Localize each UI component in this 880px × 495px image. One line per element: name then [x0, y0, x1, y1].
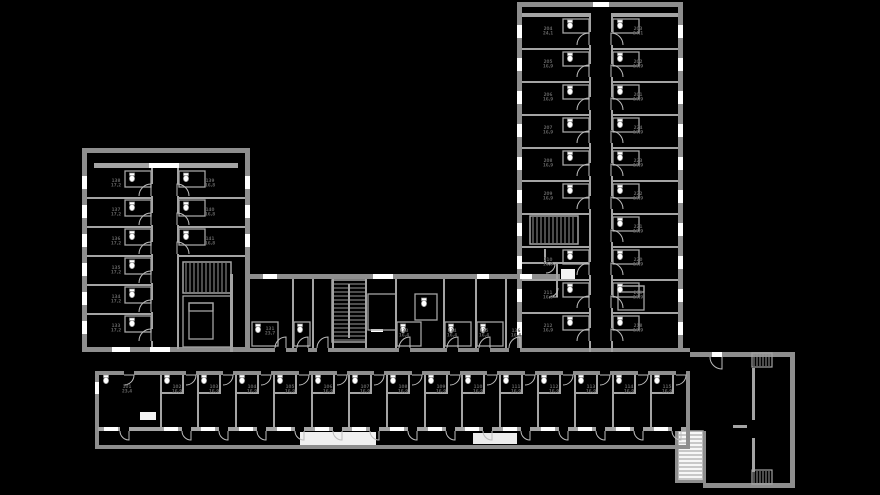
door-gap [374, 371, 384, 375]
floor-patch [140, 412, 156, 420]
toilet-bowl [352, 377, 357, 383]
floor-patch [300, 432, 376, 445]
window-opening [678, 256, 683, 269]
door-gap [596, 427, 605, 431]
bath-partition [634, 375, 636, 394]
window-opening [477, 274, 489, 279]
room-label: 10816,9 [398, 384, 408, 394]
room-label: 13517,2 [111, 265, 121, 275]
room-label: 10416,9 [247, 384, 257, 394]
partition-wall [733, 425, 747, 428]
room-label: 10516,9 [285, 384, 295, 394]
room-divider [386, 375, 388, 427]
outer-wall [675, 480, 706, 483]
window-opening [263, 274, 277, 279]
room-label: 10916,9 [436, 384, 446, 394]
window-opening [150, 347, 170, 352]
toilet-bowl [183, 175, 188, 181]
bath-partition [295, 375, 297, 394]
window-opening [517, 256, 522, 269]
toilet-bowl [129, 175, 134, 181]
partition-wall [179, 255, 245, 257]
bath-partition [182, 375, 184, 394]
bath-partition [408, 375, 410, 394]
gallery-window [201, 427, 215, 431]
toilet-bowl [201, 377, 206, 383]
room-label: 11216,9 [549, 384, 559, 394]
door-gap [483, 427, 492, 431]
room-label: 20616,9 [543, 92, 553, 102]
window-opening [678, 289, 683, 302]
room-label: 13516,4 [479, 328, 489, 338]
room-divider [574, 375, 576, 427]
room-divider [650, 375, 652, 427]
room-divider [424, 375, 426, 427]
gallery-window [239, 427, 253, 431]
bath-partition [596, 375, 598, 394]
room-label: 13616,4 [511, 328, 521, 338]
door-gap [124, 371, 134, 375]
partition-wall [613, 213, 678, 215]
room-label: 14016,8 [205, 207, 215, 217]
door-gap [120, 427, 129, 431]
door-gap [447, 348, 458, 352]
room-divider [311, 375, 313, 427]
door-gap [600, 371, 610, 375]
room-divider [348, 375, 350, 427]
gallery-window [654, 427, 668, 431]
door-gap [317, 348, 328, 352]
partition-wall [613, 81, 678, 83]
bath-partition [370, 375, 372, 394]
door-gap [275, 348, 286, 352]
floor-plan-canvas: 13817,213717,213617,213517,213417,213317… [0, 0, 880, 495]
room-label: 13123,7 [265, 326, 275, 336]
gallery-window [465, 427, 479, 431]
partition-wall [332, 279, 334, 348]
toilet-bowl [503, 377, 508, 383]
partition-wall [752, 438, 755, 472]
room-label: 10316,9 [209, 384, 219, 394]
partition-wall [522, 246, 589, 248]
room-label: 22016,9 [633, 257, 643, 267]
bath-partition [521, 375, 523, 394]
partition-wall [312, 279, 314, 348]
room-divider [499, 375, 501, 427]
window-opening [82, 176, 87, 189]
toilet-bowl [567, 22, 572, 28]
bath-partition [219, 375, 221, 394]
toilet-bowl [421, 300, 426, 306]
room-label: 13417,2 [111, 294, 121, 304]
window-opening [82, 292, 87, 305]
window-opening [245, 176, 250, 189]
door-gap [525, 371, 535, 375]
floor-patch [561, 269, 575, 279]
door-gap [479, 348, 490, 352]
room-label: 22316,9 [633, 158, 643, 168]
window-opening [95, 382, 99, 394]
room-label: 13316,4 [399, 328, 409, 338]
toilet-bowl [428, 377, 433, 383]
partition-wall [613, 48, 678, 50]
partition-wall [522, 13, 591, 17]
gallery-window [390, 427, 404, 431]
room-label: 20716,9 [543, 125, 553, 135]
room-label: 13317,2 [111, 323, 121, 333]
door-gap [559, 427, 568, 431]
toilet-bowl [578, 377, 583, 383]
room-divider [612, 375, 614, 427]
toilet-bowl [617, 187, 622, 193]
floor-patch [473, 433, 517, 444]
outer-wall [703, 483, 795, 488]
door-gap [509, 348, 520, 352]
window-opening [678, 322, 683, 335]
door-gap [223, 371, 233, 375]
room-label: 21916,9 [633, 290, 643, 300]
window-opening [520, 274, 532, 279]
toilet-bowl [390, 377, 395, 383]
room-label: 22116,9 [633, 224, 643, 234]
room-label: 20916,9 [543, 191, 553, 201]
toilet-bowl [617, 253, 622, 259]
partition-wall [87, 226, 151, 228]
window-opening [593, 2, 609, 7]
partition-wall [522, 180, 589, 182]
partition-wall [87, 197, 151, 199]
room-label: 20324,1 [633, 26, 643, 36]
window-opening [678, 91, 683, 104]
toilet-bowl [129, 262, 134, 268]
door-gap [257, 427, 266, 431]
door-gap [337, 371, 347, 375]
window-opening [517, 124, 522, 137]
room-label: 20216,9 [633, 59, 643, 69]
door-gap [186, 371, 196, 375]
partition-wall [613, 147, 678, 149]
plan-background [0, 0, 880, 495]
window-opening [112, 347, 130, 352]
partition-wall [87, 313, 151, 315]
room-label: 11116,9 [511, 384, 521, 394]
door-gap [634, 427, 643, 431]
window-opening [245, 205, 250, 218]
bath-partition [446, 375, 448, 394]
room-label: 20816,9 [543, 158, 553, 168]
door-gap [521, 427, 530, 431]
partition-wall [522, 147, 589, 149]
toilet-bowl [567, 154, 572, 160]
window-opening [82, 234, 87, 247]
room-divider [160, 375, 162, 427]
window-opening [82, 205, 87, 218]
gallery-window [315, 427, 329, 431]
room-label: 13717,2 [111, 207, 121, 217]
bath-partition [333, 375, 335, 394]
toilet-bowl [129, 233, 134, 239]
window-opening [517, 289, 522, 302]
door-gap [261, 371, 271, 375]
outer-wall [790, 352, 795, 488]
gallery-window [352, 427, 366, 431]
door-gap [487, 371, 497, 375]
partition-wall [179, 197, 245, 199]
door-gap [408, 427, 417, 431]
room-divider [537, 375, 539, 427]
window-opening [517, 58, 522, 71]
partition-wall [87, 255, 151, 257]
toilet-bowl [277, 377, 282, 383]
room-label: 21116,9 [543, 290, 553, 300]
partition-wall [365, 279, 367, 348]
door-gap [297, 348, 308, 352]
window-opening [517, 91, 522, 104]
partition-wall [179, 226, 245, 228]
room-label: 11316,9 [586, 384, 596, 394]
gallery-window [578, 427, 592, 431]
room-label: 22416,9 [633, 125, 643, 135]
toilet-bowl [129, 320, 134, 326]
window-opening [678, 223, 683, 236]
partition-wall [522, 213, 589, 215]
door-gap [219, 427, 228, 431]
door-gap [299, 371, 309, 375]
room-divider [273, 375, 275, 427]
room-divider [235, 375, 237, 427]
window-opening [373, 274, 393, 279]
partition-wall [611, 13, 678, 17]
window-opening [678, 157, 683, 170]
room-label: 21816,9 [633, 323, 643, 333]
gallery-window [164, 427, 178, 431]
toilet-bowl [255, 326, 260, 332]
door-gap [450, 371, 460, 375]
door-gap [412, 371, 422, 375]
gallery-window [428, 427, 442, 431]
room-label: 13817,2 [111, 178, 121, 188]
room-label: 11016,9 [473, 384, 483, 394]
toilet-bowl [567, 121, 572, 127]
toilet-bowl [541, 377, 546, 383]
room-label: 21216,9 [543, 323, 553, 333]
outer-wall [95, 445, 687, 449]
partition-wall [613, 312, 678, 314]
gallery-window [616, 427, 630, 431]
window-opening [149, 163, 179, 168]
partition-wall [348, 284, 350, 338]
floor-plan: 13817,213717,213617,213517,213417,213317… [0, 0, 880, 495]
bath-partition [559, 375, 561, 394]
room-label: 11416,9 [624, 384, 634, 394]
toilet-bowl [567, 88, 572, 94]
room-label: 13617,2 [111, 236, 121, 246]
toilet-bowl [465, 377, 470, 383]
toilet-bowl [567, 55, 572, 61]
toilet-bowl [617, 286, 622, 292]
background-layer [0, 0, 880, 495]
room-divider [461, 375, 463, 427]
door-gap [672, 427, 681, 431]
door-gap [638, 371, 648, 375]
toilet-bowl [129, 291, 134, 297]
gallery-window [277, 427, 291, 431]
window-opening [678, 58, 683, 71]
partition-wall [752, 368, 755, 420]
toilet-bowl [315, 377, 320, 383]
window-opening [517, 223, 522, 236]
bath-partition [672, 375, 674, 394]
partition-wall [613, 279, 678, 281]
room-label: 22216,9 [633, 191, 643, 201]
outer-wall [686, 371, 690, 449]
window-opening [245, 234, 250, 247]
window-opening [712, 352, 722, 357]
room-label: 13916,8 [205, 178, 215, 188]
partition-wall [613, 180, 678, 182]
door-gap [563, 371, 573, 375]
gallery-window [503, 427, 517, 431]
door-gap [295, 427, 304, 431]
room-label: 13416,4 [447, 328, 457, 338]
room-label: 20516,9 [543, 59, 553, 69]
toilet-bowl [617, 88, 622, 94]
door-gap [182, 427, 191, 431]
window-opening [678, 190, 683, 203]
window-opening [678, 25, 683, 38]
door-gap [446, 427, 455, 431]
partition-wall [522, 48, 589, 50]
window-opening [517, 190, 522, 203]
toilet-bowl [297, 326, 302, 332]
window-opening [82, 321, 87, 334]
door-gap [399, 348, 410, 352]
partition-wall [87, 284, 151, 286]
toilet-bowl [654, 377, 659, 383]
toilet-bowl [567, 319, 572, 325]
room-divider [197, 375, 199, 427]
outer-wall [82, 148, 250, 153]
partition-wall [522, 312, 589, 314]
toilet-bowl [617, 154, 622, 160]
toilet-bowl [103, 377, 108, 383]
outer-wall [703, 431, 706, 483]
room-label: 10616,9 [323, 384, 333, 394]
room-label: 10123,4 [122, 384, 132, 394]
toilet-bowl [617, 319, 622, 325]
toilet-bowl [183, 233, 188, 239]
door-gap [333, 427, 342, 431]
bath-partition [483, 375, 485, 394]
partition-wall [613, 246, 678, 248]
partition-wall [522, 114, 589, 116]
toilet-bowl [567, 253, 572, 259]
room-label: 10216,9 [172, 384, 182, 394]
toilet-bowl [567, 286, 572, 292]
toilet-bowl [183, 204, 188, 210]
door-gap [370, 427, 379, 431]
outer-wall [690, 352, 795, 357]
window-opening [517, 25, 522, 38]
room-label: 20424,1 [543, 26, 553, 36]
toilet-bowl [617, 22, 622, 28]
partition-wall [522, 279, 589, 281]
window-opening [678, 124, 683, 137]
bath-partition [257, 375, 259, 394]
toilet-bowl [616, 377, 621, 383]
room-label: 11516,9 [662, 384, 672, 394]
toilet-bowl [164, 377, 169, 383]
toilet-bowl [129, 204, 134, 210]
toilet-bowl [239, 377, 244, 383]
window-opening [517, 157, 522, 170]
partition-wall [505, 279, 507, 348]
gallery-window [541, 427, 555, 431]
toilet-bowl [567, 187, 572, 193]
partition-wall [522, 81, 589, 83]
toilet-bowl [617, 55, 622, 61]
room-label: 10716,9 [360, 384, 370, 394]
gallery-window [104, 427, 118, 431]
room-label: 14116,8 [205, 236, 215, 246]
outer-wall [245, 274, 560, 279]
door-gap [676, 371, 686, 375]
toilet-bowl [617, 121, 622, 127]
room-label: 20116,9 [633, 92, 643, 102]
window-opening [82, 263, 87, 276]
room-label: 21016,9 [543, 257, 553, 267]
toilet-bowl [617, 220, 622, 226]
partition-wall [613, 114, 678, 116]
